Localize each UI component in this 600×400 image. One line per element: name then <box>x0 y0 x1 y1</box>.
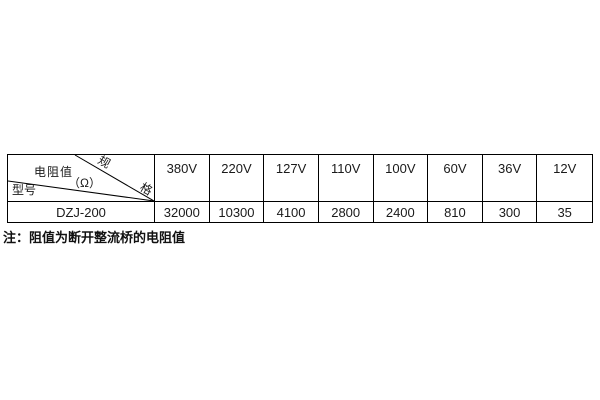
column-header-100v: 100V <box>374 155 429 202</box>
resistance-value-127v: 4100 <box>264 202 319 222</box>
column-header-127v: 127V <box>264 155 319 202</box>
column-header-36v: 36V <box>483 155 538 202</box>
model-cell: DZJ-200 <box>8 202 155 222</box>
footnote: 注：阻值为断开整流桥的电阻值 <box>3 227 185 246</box>
resistance-value-36v: 300 <box>483 202 538 222</box>
resistance-spec-table: 规 格 电阻值 （Ω） 型号 380V 220V 127V 110V 100V … <box>7 154 593 223</box>
page: 规 格 电阻值 （Ω） 型号 380V 220V 127V 110V 100V … <box>0 0 600 400</box>
column-header-220v: 220V <box>210 155 265 202</box>
resistance-value-100v: 2400 <box>374 202 429 222</box>
corner-header-cell: 规 格 电阻值 （Ω） 型号 <box>8 155 155 202</box>
column-header-380v: 380V <box>155 155 210 202</box>
resistance-value-110v: 2800 <box>319 202 374 222</box>
column-header-12v: 12V <box>537 155 592 202</box>
resistance-value-220v: 10300 <box>210 202 265 222</box>
resistance-value-12v: 35 <box>537 202 592 222</box>
corner-label-model: 型号 <box>12 184 36 197</box>
resistance-value-60v: 810 <box>428 202 483 222</box>
resistance-value-380v: 32000 <box>155 202 210 222</box>
column-header-110v: 110V <box>319 155 374 202</box>
corner-label-resistance-unit: （Ω） <box>68 177 101 190</box>
column-header-60v: 60V <box>428 155 483 202</box>
